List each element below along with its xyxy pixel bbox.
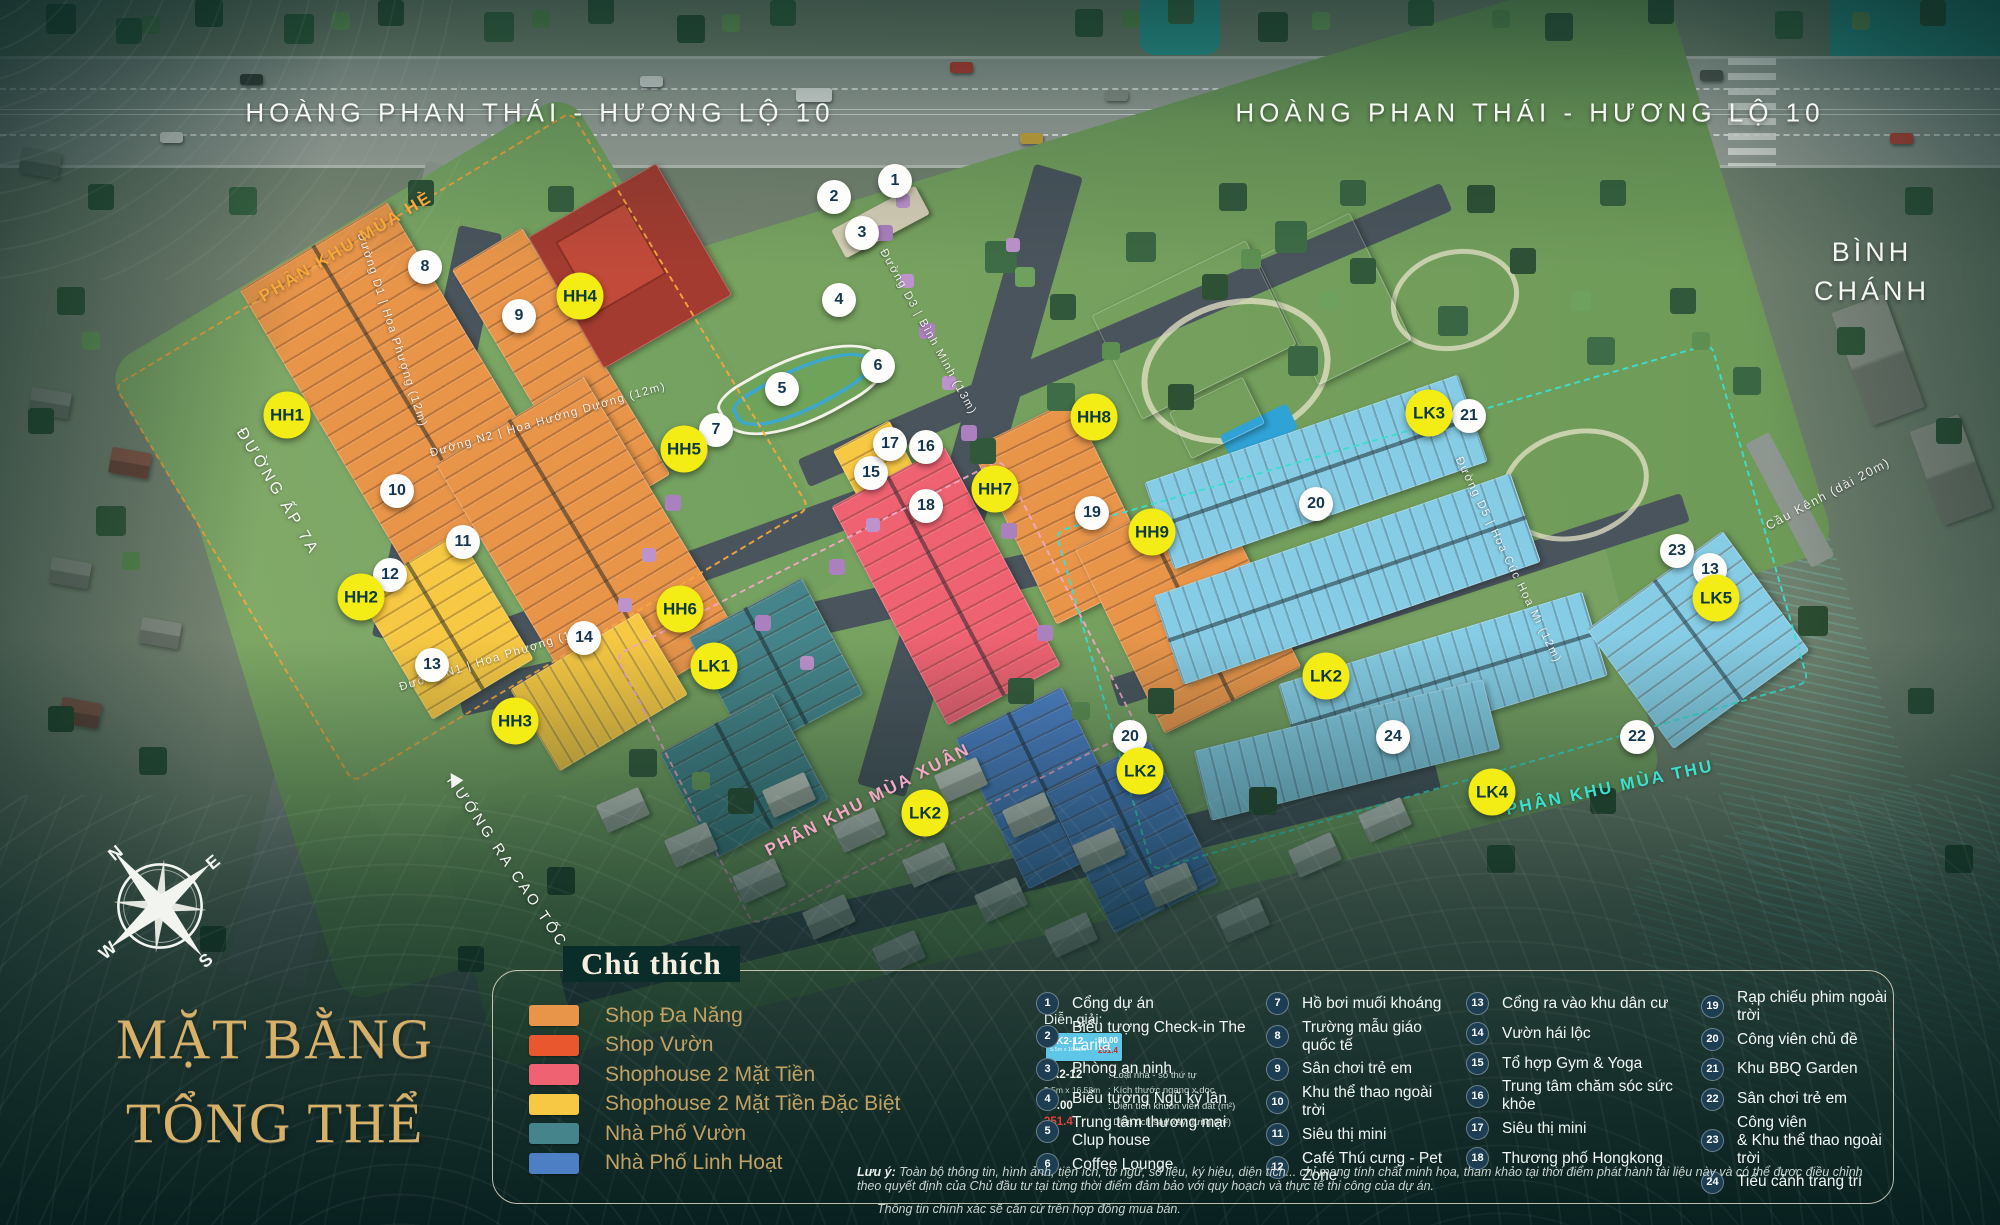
poi-number: 16 [1466,1085,1489,1108]
poi-legend-item: 19Rạp chiếu phim ngoài trời [1701,989,1891,1025]
legend-color-swatch [529,1035,579,1056]
block-code-badge: LK2 [1117,748,1164,795]
legend-type-item: Nhà Phố Linh Hoạt [529,1149,900,1179]
page-title: MẶT BẰNG TỔNG THỂ [75,998,475,1166]
poi-number: 1 [1036,992,1059,1015]
page-title-line1: MẶT BẰNG [75,998,475,1082]
poi-number: 14 [1466,1022,1489,1045]
poi-legend-col-1: 1Cổng dự án2Biểu tượng Check-in The Lari… [1036,989,1254,1179]
poi-legend-item: 1Cổng dự án [1036,989,1254,1019]
block-code-badge: HH7 [972,466,1019,513]
poi-label: Trung tâm chăm sóc sức khỏe [1502,1078,1694,1114]
poi-number: 2 [1036,1025,1059,1048]
block-code-badge: HH8 [1071,394,1118,441]
compass-rose: N E S W [82,828,238,984]
legend-note: Lưu ý: Toàn bộ thông tin, hình ảnh, tiện… [857,1165,1867,1216]
poi-number: 8 [1266,1025,1289,1048]
legend-type-label: Shophouse 2 Mặt Tiền [605,1063,815,1087]
poi-legend-item: 15Tổ hợp Gym & Yoga [1466,1049,1694,1079]
poi-number: 20 [1701,1028,1724,1051]
legend-type-list: Shop Đa Năng Shop Vườn Shophouse 2 Mặt T… [529,1001,900,1178]
poi-label: Biểu tượng Ngũ kỳ lân [1072,1090,1227,1108]
poi-number: 4 [1036,1088,1059,1111]
poi-label: Rạp chiếu phim ngoài trời [1737,989,1891,1025]
poi-legend-item: 22Sân chơi trẻ em [1701,1084,1891,1114]
legend-color-swatch [529,1153,579,1174]
legend-type-label: Nhà Phố Linh Hoạt [605,1151,782,1175]
compass-e: E [202,850,224,873]
poi-label: Sân chơi trẻ em [1302,1060,1412,1078]
poi-legend-item: 21Khu BBQ Garden [1701,1054,1891,1084]
legend-type-item: Shophouse 2 Mặt Tiền Đặc Biệt [529,1090,900,1120]
poi-legend-item: 2Biểu tượng Check-in The Larita [1036,1019,1254,1055]
block-code-badge: HH1 [264,392,311,439]
poi-label: Biểu tượng Check-in The Larita [1072,1019,1254,1055]
poi-label: Khu BBQ Garden [1737,1060,1858,1078]
legend-type-item: Shophouse 2 Mặt Tiền [529,1060,900,1090]
poi-legend-item: 14Vườn hái lộc [1466,1019,1694,1049]
poi-label: Vườn hái lộc [1502,1025,1591,1043]
block-code-badge: HH6 [657,586,704,633]
poi-legend-item: 20Công viên chủ đề [1701,1025,1891,1055]
legend-type-item: Nhà Phố Vườn [529,1119,900,1149]
poi-legend-item: 3Phòng an ninh [1036,1054,1254,1084]
poi-label: Phòng an ninh [1072,1060,1172,1078]
block-code-badge: LK3 [1406,390,1453,437]
legend-color-swatch [529,1094,579,1115]
block-code-badge: HH3 [492,698,539,745]
poi-label: Tổ hợp Gym & Yoga [1502,1055,1642,1073]
poi-label: Sân chơi trẻ em [1737,1090,1847,1108]
poi-legend-item: 23Công viên & Khu thể thao ngoài trời [1701,1114,1891,1167]
poi-number: 9 [1266,1058,1289,1081]
legend-color-swatch [529,1064,579,1085]
poi-label: Công viên & Khu thể thao ngoài trời [1737,1114,1891,1167]
poi-number: 5 [1036,1120,1059,1143]
poi-number: 11 [1266,1123,1289,1146]
poi-legend-item: 4Biểu tượng Ngũ kỳ lân [1036,1084,1254,1114]
legend-type-label: Nhà Phố Vườn [605,1122,746,1146]
legend-color-swatch [529,1123,579,1144]
legend-type-item: Shop Đa Năng [529,1001,900,1031]
block-code-badge: HH4 [557,273,604,320]
poi-label: Khu thể thao ngoài trời [1302,1084,1458,1120]
block-code-badge: LK1 [691,643,738,690]
legend-type-item: Shop Vườn [529,1031,900,1061]
poi-number: 10 [1266,1091,1289,1114]
poi-number: 13 [1466,992,1489,1015]
poi-legend-item: 17Siêu thị mini [1466,1114,1694,1144]
poi-number: 17 [1466,1117,1489,1140]
poi-legend-item: 16Trung tâm chăm sóc sức khỏe [1466,1078,1694,1114]
poi-number: 15 [1466,1052,1489,1075]
legend-panel: Chú thích Shop Đa Năng Shop Vườn Shophou… [492,970,1894,1204]
poi-label: Hồ bơi muối khoáng [1302,995,1441,1013]
poi-number: 7 [1266,992,1289,1015]
poi-number: 23 [1701,1129,1724,1152]
legend-type-label: Shophouse 2 Mặt Tiền Đặc Biệt [605,1092,900,1116]
poi-legend-item: 5Trung tâm thương mại Clup house [1036,1114,1254,1150]
poi-label: Siêu thị mini [1302,1126,1386,1144]
legend-type-label: Shop Vườn [605,1033,713,1057]
poi-label: Công viên chủ đề [1737,1031,1858,1049]
note-line1: Toàn bộ thông tin, hình ảnh, tiện ích, t… [857,1165,1863,1193]
legend-color-swatch [529,1005,579,1026]
poi-number: 19 [1701,995,1724,1018]
page-title-line2: TỔNG THỂ [75,1082,475,1166]
block-code-badge: LK2 [902,790,949,837]
poi-label: Cổng ra vào khu dân cư [1502,995,1668,1013]
poi-legend-item: 8Trường mẫu giáo quốc tế [1266,1019,1458,1055]
poi-label: Trung tâm thương mại Clup house [1072,1114,1226,1150]
poi-legend-item: 9Sân chơi trẻ em [1266,1054,1458,1084]
note-line2: Thông tin chính xác sẽ căn cứ trên hợp đ… [877,1202,1867,1216]
block-code-badge: LK4 [1469,769,1516,816]
note-label: Lưu ý: [857,1165,896,1179]
block-code-badge: HH9 [1129,509,1176,556]
poi-legend-item: 11Siêu thị mini [1266,1120,1458,1150]
block-code-badge: LK2 [1303,653,1350,700]
poi-legend-col-2: 7Hồ bơi muối khoáng8Trường mẫu giáo quốc… [1266,989,1458,1185]
poi-label: Siêu thị mini [1502,1120,1586,1138]
poi-legend-item: 7Hồ bơi muối khoáng [1266,989,1458,1019]
poi-legend-col-3: 13Cổng ra vào khu dân cư14Vườn hái lộc15… [1466,989,1694,1174]
legend-type-label: Shop Đa Năng [605,1004,743,1028]
poi-legend-item: 13Cổng ra vào khu dân cư [1466,989,1694,1019]
poi-number: 22 [1701,1088,1724,1111]
block-code-badge: HH5 [661,426,708,473]
legend-title: Chú thích [563,946,740,982]
block-code-badge: HH2 [338,574,385,621]
poi-number: 21 [1701,1058,1724,1081]
poi-label: Cổng dự án [1072,995,1154,1013]
block-code-badge: LK5 [1693,575,1740,622]
poi-number: 3 [1036,1058,1059,1081]
poi-legend-item: 10Khu thể thao ngoài trời [1266,1084,1458,1120]
poi-label: Trường mẫu giáo quốc tế [1302,1019,1458,1055]
masterplan-map: HOÀNG PHAN THÁI - HƯƠNG LỘ 10 HOÀNG PHAN… [0,0,2000,1225]
